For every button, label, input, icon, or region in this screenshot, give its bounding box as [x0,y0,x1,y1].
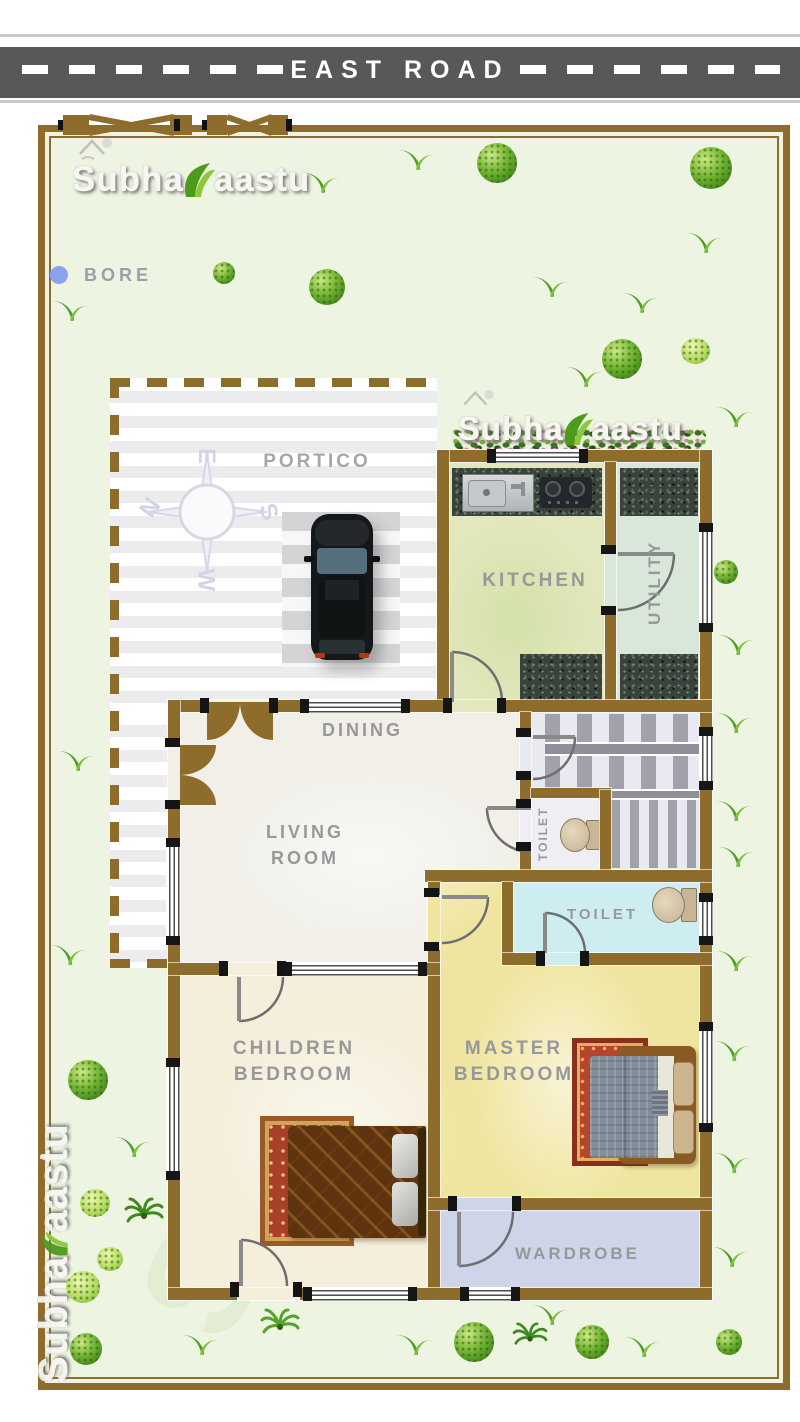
door-symbol [237,975,285,1023]
door-symbol [450,650,504,704]
house-sketch-icon [76,136,116,162]
tree-icon [68,1060,108,1100]
house-sketch-icon [460,388,498,412]
room-label-toilet-attached: TOILET [536,801,556,867]
room-label-living-2: ROOM [240,848,370,869]
wall [600,790,611,880]
grass-icon [716,708,752,736]
window-symbol [699,523,713,632]
tree-icon [714,560,738,584]
grass-icon [716,796,752,824]
tree-icon [70,1333,102,1365]
window-symbol [166,1058,180,1180]
tree-icon [477,143,517,183]
road-label: EAST ROAD [0,56,800,85]
leaf-icon [562,411,594,447]
stove-icon [540,477,592,508]
grass-icon [714,1148,750,1176]
window-symbol [699,893,713,945]
window-symbol [283,962,427,976]
pillow [673,1110,694,1154]
portico-dashed-border-left [110,378,119,968]
window-symbol [699,727,713,790]
portico-dashed-border-bottom [110,959,168,968]
door-symbol [239,1238,289,1288]
room-label-living-1: LIVING [240,822,370,843]
grass-icon [712,1242,748,1270]
grass-icon [398,145,434,173]
grass-icon [182,1330,218,1358]
tree-icon [602,339,642,379]
bore-dot-icon [50,266,68,284]
leaf-icon [34,1231,74,1258]
grass-icon [714,1036,750,1064]
room-label-wardrobe: WARDROBE [505,1244,650,1264]
logo-part1: Subha [72,160,184,200]
tree-icon [575,1325,609,1359]
grass-icon [114,1132,150,1160]
grass-icon [58,746,94,774]
bed-runner [652,1090,668,1116]
grass-icon [718,842,754,870]
wall [531,788,611,798]
pillow [673,1062,694,1106]
grass-icon [624,1332,660,1360]
gate-icon [58,112,198,138]
grass-icon [622,288,658,316]
tree-icon [309,269,345,305]
kitchen-counter-bottom [520,654,602,700]
window-symbol [300,699,410,713]
tree-icon [454,1322,494,1362]
leaf-icon [182,161,216,199]
gate-icon [202,112,294,138]
logo-part1: Subha [458,410,564,448]
palm-icon [124,1197,164,1233]
tree-icon [690,147,732,189]
room-label-dining: DINING [300,720,425,741]
window-symbol [166,838,180,945]
compass-east: E [192,448,220,464]
tree-icon [66,1271,100,1303]
door-symbol [531,735,577,781]
room-label-master-1: MASTER [448,1038,580,1060]
tree-icon [97,1247,123,1271]
window-symbol [460,1287,520,1301]
window-symbol [487,449,588,463]
tree-icon [716,1329,742,1355]
grass-icon [566,362,602,390]
toilet-icon [560,817,600,851]
bore-label: BORE [84,265,164,286]
grass-icon [396,1330,432,1358]
grass-icon [686,228,722,256]
tree-icon [80,1189,110,1217]
bed-icon [288,1126,426,1238]
grass-icon [303,168,339,196]
door-symbol [440,895,490,945]
staircase-rail-lower [611,789,700,800]
logo-part2: aastu [214,160,310,200]
grass-icon [50,940,86,968]
grass-icon [52,296,88,324]
utility-counter-bottom [620,654,698,700]
grass-icon [716,946,752,974]
logo-part1: Subha [32,1256,77,1383]
floor-plan-canvas: EAST ROAD SubhaVaastu [0,0,800,1422]
grass-icon [716,402,752,430]
utility-counter-top [620,468,698,516]
road-edge-line-bottom [0,100,800,103]
wall [437,450,449,712]
grass-icon [532,1300,568,1328]
tree-icon [213,262,235,284]
room-label-kitchen: KITCHEN [470,570,600,592]
logo-part2: aastu [32,1123,77,1233]
wall [425,870,712,882]
window-symbol [699,1022,713,1132]
window-symbol [303,1287,417,1301]
palm-icon [260,1308,300,1344]
sink-icon [462,474,534,512]
grass-icon [718,630,754,658]
logo-part2: aastu [592,410,683,448]
room-label-toilet-common: TOILET [545,906,660,923]
room-label-master-2: BEDROOM [448,1064,580,1086]
tree-icon [681,338,710,364]
portico-dashed-border-top [110,378,437,387]
room-label-children-2: BEDROOM [226,1064,362,1086]
compass-west: W [191,569,219,592]
brand-logo: Subha aastu [458,410,683,448]
brand-logo: Subha aastu [72,160,310,200]
room-label-portico: PORTICO [252,451,382,473]
road-edge-line-top [0,34,800,37]
car-icon [311,514,373,660]
staircase-lower-flight [611,792,700,868]
room-label-children-1: CHILDREN [226,1038,362,1060]
wall [502,953,712,965]
grass-icon [532,272,568,300]
compass-icon [147,452,267,572]
room-label-utility: UTILITY [645,515,671,650]
